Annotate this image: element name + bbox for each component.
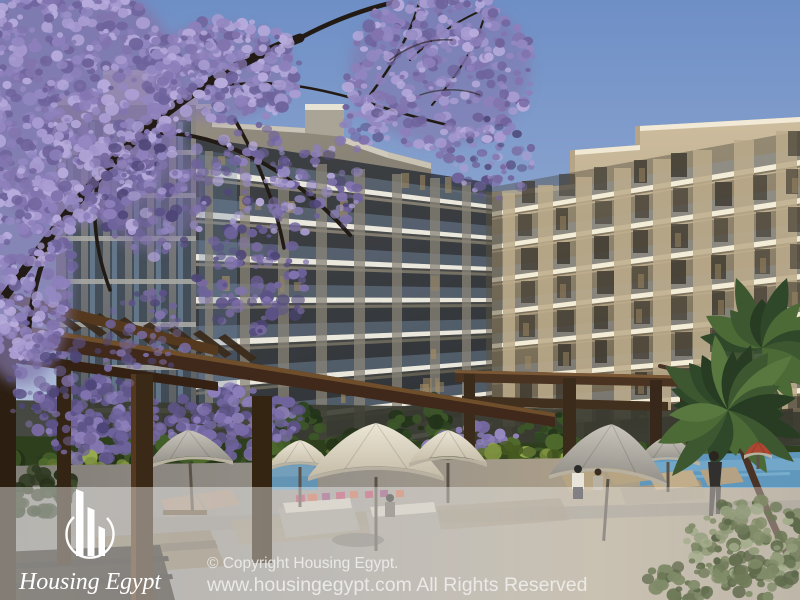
- svg-text:www.housingegypt.com All Right: www.housingegypt.com All Rights Reserved: [206, 574, 587, 596]
- svg-text:Housing Egypt: Housing Egypt: [18, 569, 162, 595]
- svg-text:© Copyright Housing Egypt.: © Copyright Housing Egypt.: [207, 555, 399, 572]
